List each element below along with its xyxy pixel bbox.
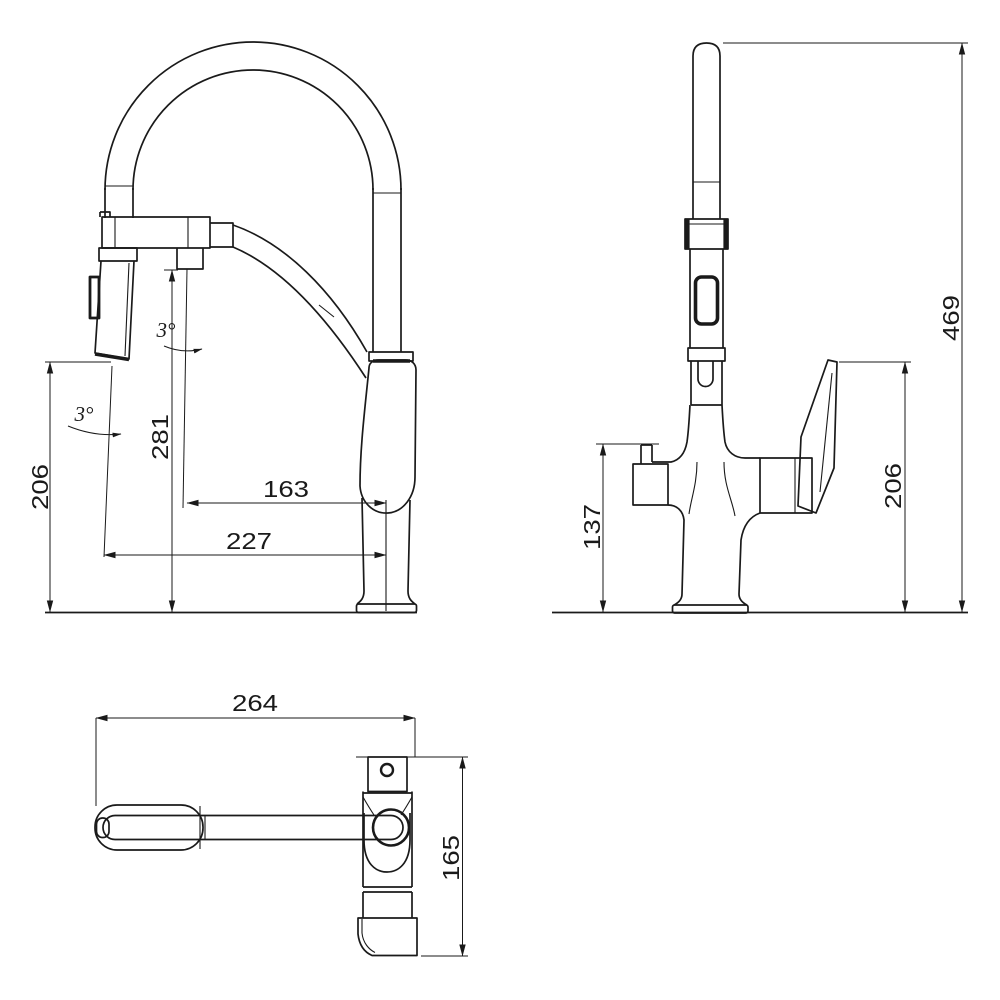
ext-line-spray-axis — [104, 366, 112, 557]
dim-label-spray-outlet-height: 206 — [27, 464, 53, 510]
handle-lever-inner-line — [820, 373, 832, 492]
lever-pivot-hole — [381, 764, 393, 776]
handle-plate-top — [368, 757, 407, 792]
spray-button-slot — [696, 277, 718, 324]
hose-curve-joint — [319, 305, 334, 317]
head-joint-band — [688, 348, 725, 361]
hose-curve-top — [233, 225, 367, 352]
dim-label-spout-reach: 163 — [263, 476, 309, 502]
faucet-body-top — [358, 757, 417, 956]
front-view-dimensions: 469 206 137 — [579, 43, 968, 612]
hose-outer-arc — [105, 42, 401, 190]
faucet-body-side — [357, 352, 417, 613]
drawing-canvas: 206 281 163 227 3° 3° — [0, 0, 1000, 1000]
body-fillets-top — [363, 797, 412, 815]
dim-label-spray-reach: 227 — [226, 528, 272, 554]
dim-label-overall-height: 469 — [938, 295, 964, 341]
holder-arm-divider — [115, 217, 188, 248]
spray-housing-top — [95, 805, 203, 850]
side-outlet-stub — [641, 445, 652, 464]
spray-face — [95, 354, 129, 360]
base-notch-top — [362, 919, 375, 953]
spout-tube-front — [693, 43, 720, 219]
hose-curve — [233, 225, 367, 378]
waterway-curve-left — [689, 462, 697, 514]
dock-u-tab — [698, 361, 713, 387]
body-right-edge-front — [722, 405, 760, 458]
angle-label-holder-tilt: 3° — [156, 318, 177, 342]
top-view: 264 165 — [95, 690, 468, 956]
holder-mount — [177, 248, 203, 269]
spray-head-button — [90, 277, 99, 318]
holder-arm-body — [102, 217, 210, 248]
waterway-curve-right — [724, 462, 735, 516]
faucet-body-front — [633, 360, 837, 613]
dim-label-base-depth: 165 — [438, 835, 464, 881]
base-plate-top — [358, 918, 417, 956]
dim-label-side-outlet-height: 137 — [579, 504, 605, 550]
dim-label-handle-height: 206 — [880, 463, 906, 509]
stem-left-front — [668, 505, 684, 605]
handle-grip-side — [360, 360, 416, 513]
spray-head-cap — [99, 248, 137, 261]
handle-mount-block — [760, 458, 812, 513]
dim-label-overall-length: 264 — [232, 690, 278, 716]
angle-label-spray-tilt: 3° — [74, 402, 95, 426]
angle-arc-spray-tilt — [68, 426, 121, 435]
front-view: 469 206 137 — [552, 43, 968, 613]
dock-section-front — [691, 361, 722, 405]
spout-arm-top — [95, 805, 409, 850]
side-view-dimensions: 206 281 163 227 3° 3° — [27, 269, 386, 612]
spout-column-front — [685, 43, 728, 405]
stem-right-front — [739, 513, 760, 605]
side-view: 206 281 163 227 3° 3° — [27, 42, 417, 613]
dim-label-holder-height: 281 — [147, 414, 173, 460]
hose-right-leg — [373, 188, 401, 352]
side-outlet-block — [633, 464, 668, 505]
spray-head-side — [90, 248, 137, 360]
spout-bar-top — [103, 816, 403, 840]
spray-hose-arc — [105, 42, 401, 352]
hose-inner-arc — [133, 70, 373, 190]
stem-flare-left — [357, 591, 364, 604]
body-left-edge-front — [652, 405, 690, 462]
spray-head-inner-line — [125, 263, 129, 356]
holder-hose-connector — [210, 223, 233, 247]
stem-flare-right — [408, 591, 415, 604]
faucet-technical-drawing: 206 281 163 227 3° 3° — [0, 0, 1000, 1000]
body-section-lines-top — [363, 887, 412, 918]
angle-arc-holder-tilt — [164, 346, 202, 351]
ext-line-holder-axis — [183, 269, 187, 508]
